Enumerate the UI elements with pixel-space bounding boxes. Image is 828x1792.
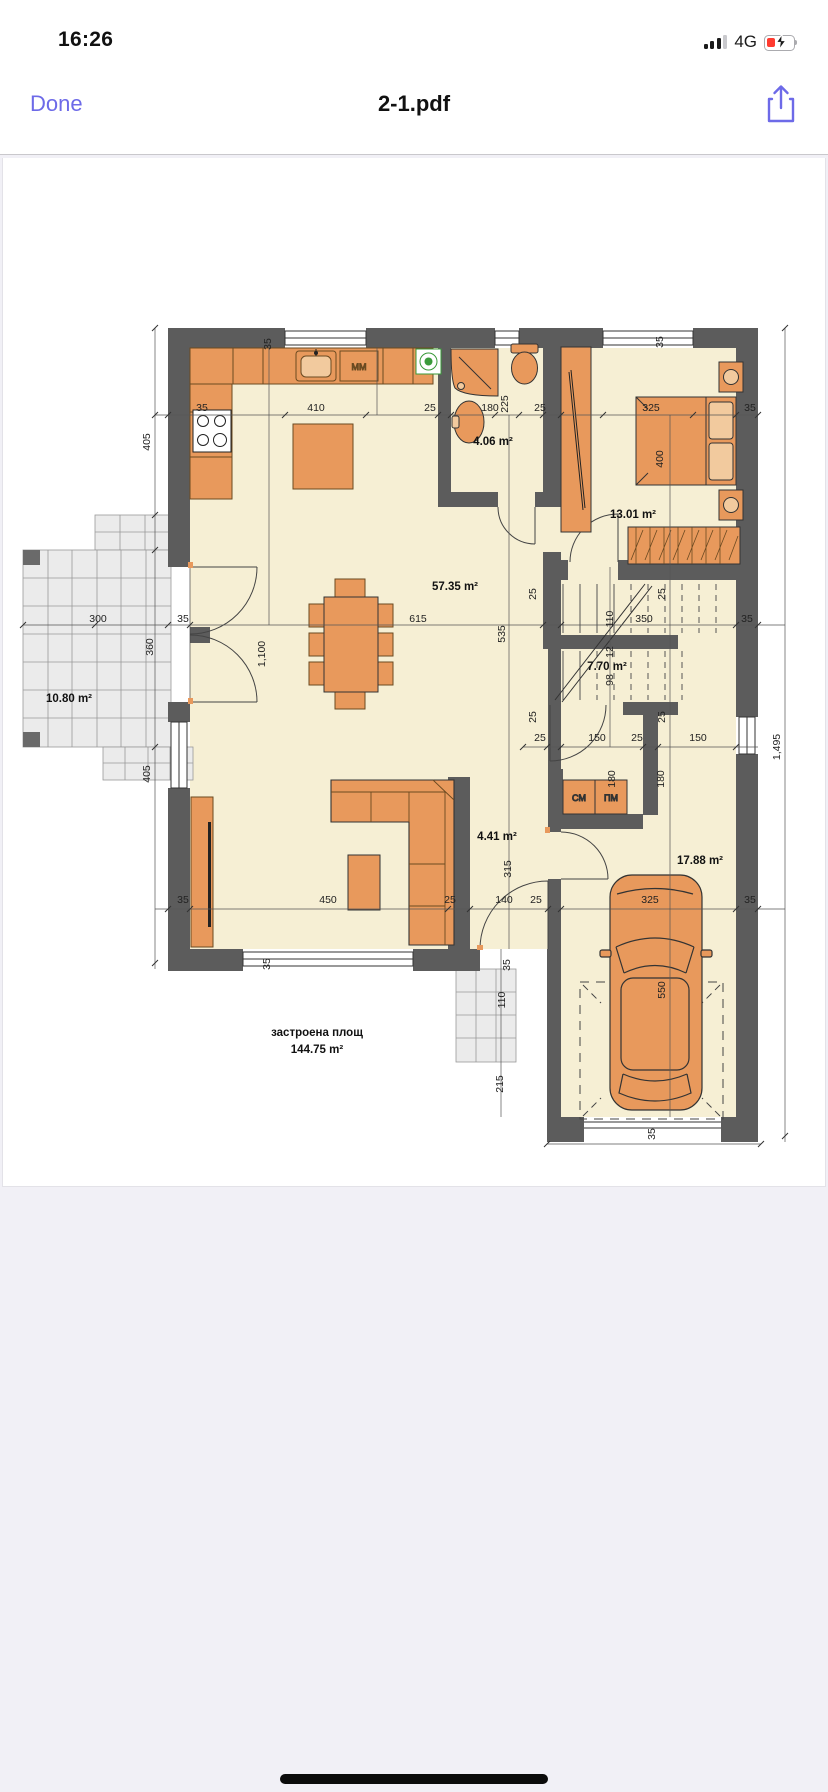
shower — [451, 349, 498, 396]
nightstand — [719, 490, 743, 520]
svg-text:150: 150 — [588, 732, 606, 744]
pdf-page[interactable]: ММ — [2, 158, 826, 1187]
svg-text:615: 615 — [409, 613, 427, 625]
network-type-label: 4G — [734, 32, 757, 52]
washing-machine-label: СМ — [572, 793, 586, 803]
garage-side-window — [739, 717, 755, 754]
mirror-wardrobe — [561, 347, 591, 532]
svg-text:35: 35 — [744, 894, 756, 906]
svg-text:25: 25 — [631, 732, 643, 744]
svg-text:110: 110 — [496, 991, 508, 1008]
svg-text:25: 25 — [444, 894, 456, 906]
share-button[interactable] — [764, 83, 798, 125]
svg-text:25: 25 — [424, 402, 436, 414]
hatched-wardrobe — [628, 527, 740, 564]
dishwasher: ММ — [340, 351, 378, 381]
svg-text:25: 25 — [534, 732, 546, 744]
svg-text:98: 98 — [604, 674, 616, 686]
floor-plan-drawing: ММ — [3, 172, 825, 1184]
svg-text:325: 325 — [642, 402, 660, 414]
svg-text:12: 12 — [604, 646, 616, 658]
svg-text:144.75 m²: 144.75 m² — [291, 1044, 344, 1056]
room-area-label-bedroom: 13.01 m² — [610, 509, 656, 521]
room-area-label-terrace: 10.80 m² — [46, 693, 92, 705]
bedroom-window — [603, 331, 693, 345]
svg-text:1,495: 1,495 — [771, 734, 783, 760]
svg-text:400: 400 — [654, 450, 666, 468]
room-area-label-living: 57.35 m² — [432, 581, 478, 593]
svg-text:215: 215 — [494, 1075, 506, 1093]
svg-text:25: 25 — [530, 894, 542, 906]
svg-text:25: 25 — [656, 711, 668, 723]
svg-text:315: 315 — [502, 860, 514, 878]
svg-text:360: 360 — [144, 638, 156, 656]
bathroom-window — [495, 331, 519, 345]
svg-text:140: 140 — [495, 894, 513, 906]
svg-text:25: 25 — [527, 588, 539, 600]
svg-text:35: 35 — [654, 336, 666, 348]
svg-text:180: 180 — [655, 770, 667, 788]
porch-steps — [456, 969, 516, 1062]
svg-text:35: 35 — [261, 958, 273, 970]
svg-text:225: 225 — [499, 395, 511, 413]
svg-text:35: 35 — [196, 402, 208, 414]
svg-text:550: 550 — [656, 981, 668, 999]
dishwasher-label: ММ — [352, 362, 367, 372]
nav-bar: Done 2-1.pdf — [0, 54, 828, 155]
kitchen-window — [285, 331, 366, 345]
toilet — [511, 344, 538, 384]
pdf-viewer-area[interactable]: ММ — [0, 156, 828, 1792]
svg-text:350: 350 — [635, 613, 653, 625]
pdf-viewer-screen: { "status_bar": { "time": "16:26", "netw… — [0, 0, 828, 1792]
total-area-label: застроена площ 144.75 m² — [271, 1027, 363, 1056]
svg-text:405: 405 — [141, 765, 153, 783]
dishwasher-closet-label: ПМ — [604, 793, 618, 803]
svg-text:300: 300 — [89, 613, 107, 625]
room-area-label-corridor: 4.41 m² — [477, 831, 517, 843]
svg-text:25: 25 — [534, 402, 546, 414]
svg-text:405: 405 — [141, 433, 153, 451]
svg-text:410: 410 — [307, 402, 325, 414]
tv-unit — [191, 797, 213, 947]
svg-text:35: 35 — [501, 959, 513, 971]
room-area-label-bathroom: 4.06 m² — [473, 436, 513, 448]
svg-text:25: 25 — [656, 588, 668, 600]
svg-text:35: 35 — [177, 894, 189, 906]
svg-text:35: 35 — [744, 402, 756, 414]
svg-text:25: 25 — [527, 711, 539, 723]
battery-charging-icon — [764, 34, 798, 50]
kitchen-island — [293, 424, 353, 489]
svg-text:35: 35 — [177, 613, 189, 625]
left-wall-window — [171, 722, 187, 788]
room-area-label-staircase: 7.70 m² — [587, 661, 627, 673]
done-button[interactable]: Done — [30, 91, 83, 117]
room-area-label-garage: 17.88 m² — [677, 855, 723, 867]
status-bar: 16:26 4G — [0, 0, 828, 54]
svg-text:150: 150 — [689, 732, 707, 744]
terrace — [23, 515, 193, 780]
svg-text:450: 450 — [319, 894, 337, 906]
svg-text:35: 35 — [262, 338, 274, 350]
terrace-post — [23, 732, 40, 747]
svg-text:180: 180 — [481, 402, 499, 414]
clock: 16:26 — [30, 28, 113, 52]
terrace-post — [23, 550, 40, 565]
tv-screen — [208, 822, 211, 927]
page-title: 2-1.pdf — [0, 91, 828, 117]
nightstand — [719, 362, 743, 392]
garage-door-opening — [584, 1122, 721, 1128]
kitchen-sink — [296, 349, 336, 381]
svg-text:110: 110 — [604, 610, 616, 627]
coffee-table — [348, 855, 380, 910]
boiler-icon — [416, 349, 441, 374]
cooktop — [193, 410, 231, 452]
svg-text:35: 35 — [741, 613, 753, 625]
svg-text:325: 325 — [641, 894, 659, 906]
svg-text:35: 35 — [646, 1128, 658, 1140]
charging-bolt-icon — [773, 33, 789, 51]
svg-text:1,100: 1,100 — [256, 641, 268, 667]
svg-text:застроена площ: застроена площ — [271, 1027, 363, 1039]
cellular-signal-icon — [704, 35, 728, 49]
home-indicator[interactable] — [280, 1774, 548, 1784]
svg-text:180: 180 — [606, 770, 618, 788]
svg-text:535: 535 — [496, 625, 508, 643]
